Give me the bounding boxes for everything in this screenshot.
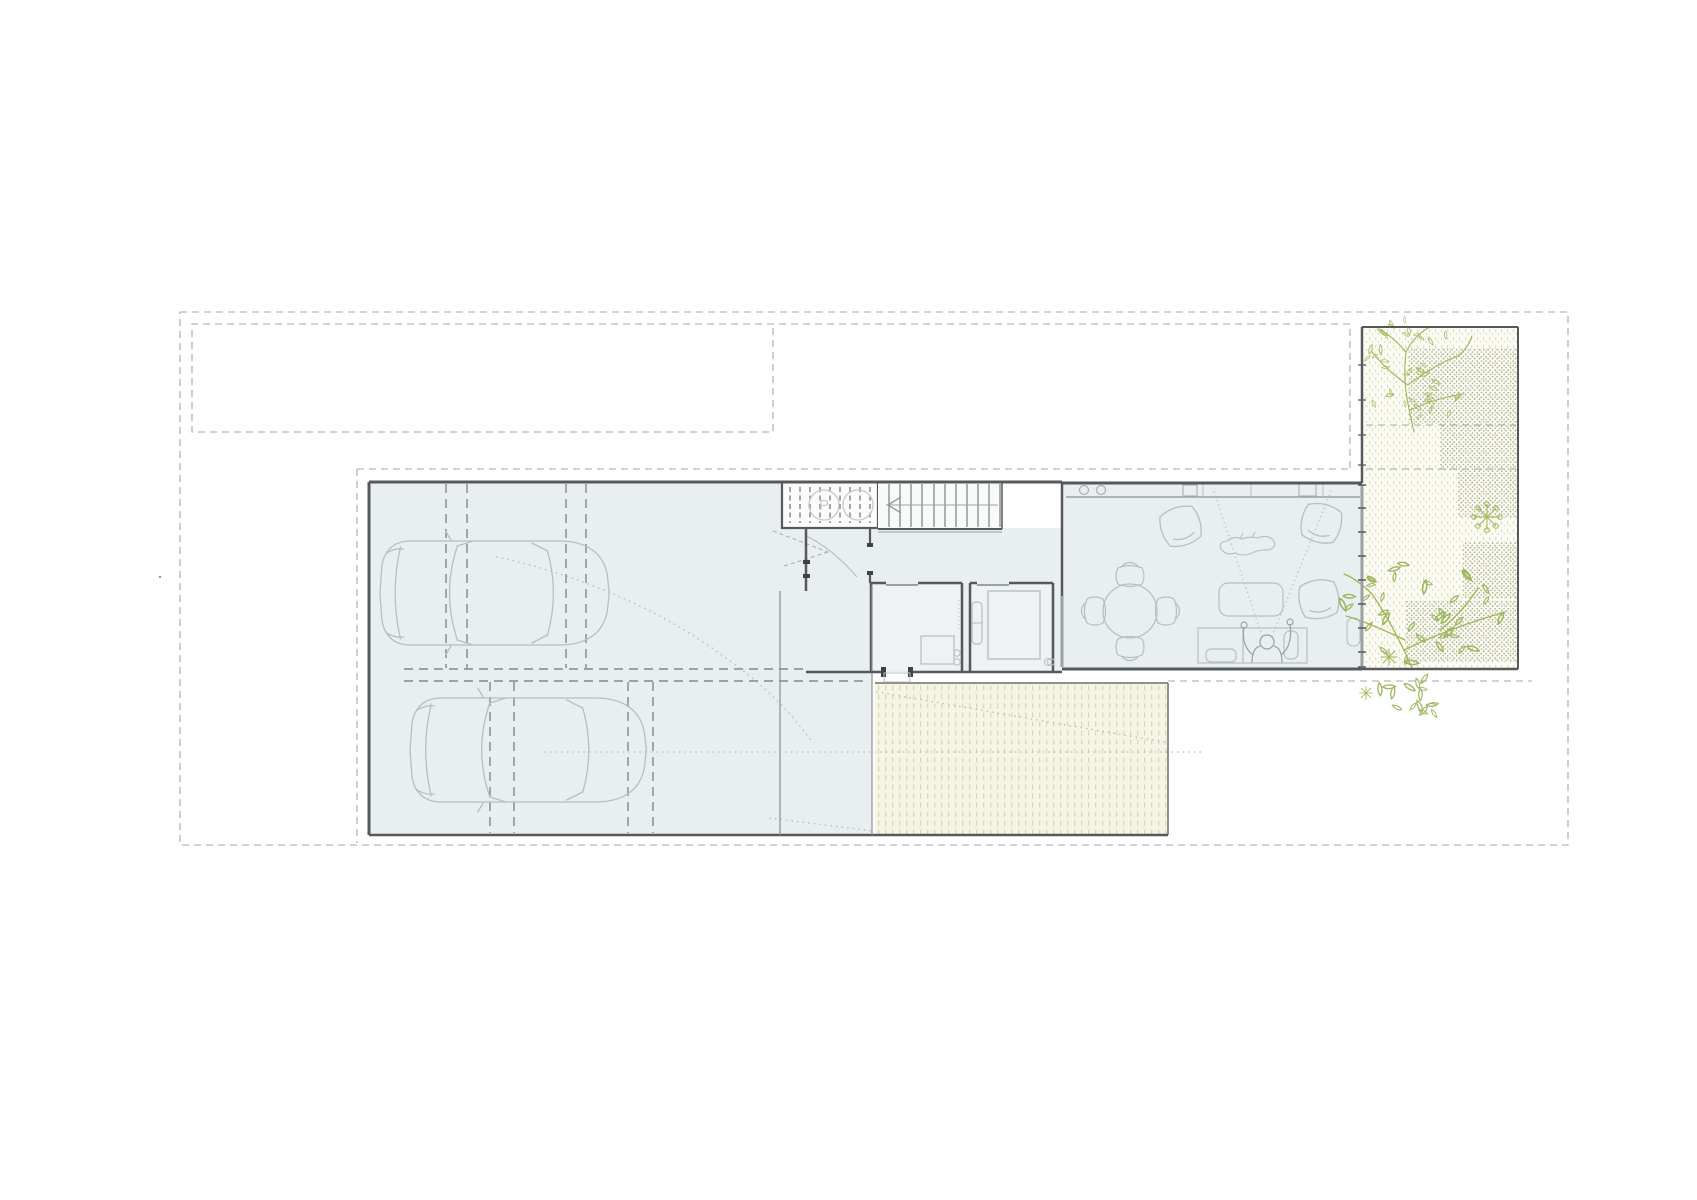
garage xyxy=(369,482,872,835)
door-jamb-3 xyxy=(867,543,873,547)
floor-plan-canvas: P xyxy=(0,0,1697,1200)
staircase xyxy=(878,482,1002,532)
door-jamb-1 xyxy=(803,560,810,564)
star-sprig-2 xyxy=(1360,687,1373,700)
shrub-umbel xyxy=(1472,502,1503,533)
living-dining xyxy=(1062,483,1362,669)
garage-floor xyxy=(369,482,872,835)
garden xyxy=(1338,316,1518,718)
bath-a-floor xyxy=(873,585,960,670)
stray-mark xyxy=(159,576,161,578)
door-jamb-2 xyxy=(803,574,810,578)
porch-deck: P xyxy=(782,482,878,528)
bathroom-a xyxy=(871,583,962,672)
porch-label: P xyxy=(819,497,829,514)
star-sprig-1 xyxy=(1381,649,1397,665)
living-floor xyxy=(1062,483,1362,669)
yard-hatch xyxy=(875,683,1168,835)
rear-yard xyxy=(875,683,1168,835)
floor-plan-drawing: P xyxy=(0,0,1697,1200)
door-jamb-4 xyxy=(867,571,873,575)
bathroom-b xyxy=(970,583,1053,672)
